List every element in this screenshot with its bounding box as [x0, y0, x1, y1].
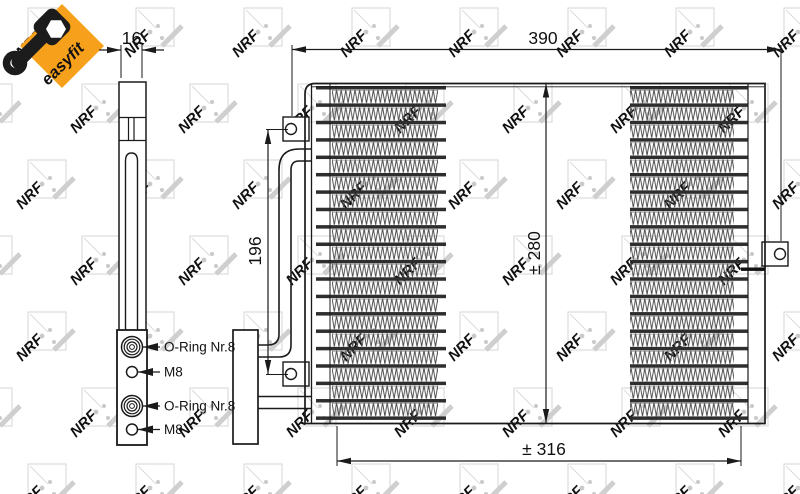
dimension-390-label: 390	[528, 28, 557, 48]
callout-label: M8	[164, 365, 183, 380]
side-view	[117, 82, 147, 445]
fin-block-left	[332, 86, 438, 420]
front-view-flange	[233, 330, 258, 444]
callout-label: O-Ring Nr.8	[164, 340, 235, 355]
side-view-body	[119, 82, 146, 332]
callout-label: O-Ring Nr.8	[164, 399, 235, 414]
dimension-280-label: ± 280	[524, 231, 544, 275]
dimension-316-label: ± 316	[522, 439, 566, 459]
technical-drawing-page: NRF NRF NRF	[0, 0, 800, 494]
right-support-bar	[741, 268, 766, 271]
bracket-hole-right	[775, 249, 786, 260]
dimension-196-label: 196	[245, 236, 265, 265]
callout-label: M8	[164, 422, 183, 437]
dimension-16-label: 16	[122, 28, 141, 48]
fin-block-right	[630, 86, 734, 420]
condenser-diagram: NRF NRF NRF	[0, 0, 800, 494]
